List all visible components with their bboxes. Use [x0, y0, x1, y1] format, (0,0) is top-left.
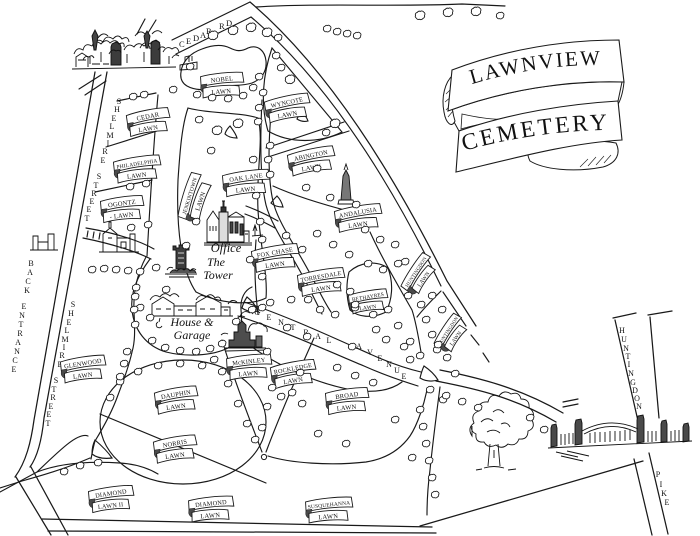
svg-text:N: N — [386, 360, 392, 369]
svg-text:E: E — [101, 156, 106, 165]
svg-text:R: R — [219, 21, 225, 31]
svg-text:U: U — [394, 366, 400, 375]
svg-text:R: R — [17, 329, 23, 338]
svg-text:L: L — [110, 122, 115, 131]
svg-text:C: C — [179, 39, 185, 49]
svg-text:E: E — [665, 498, 670, 507]
svg-text:A: A — [315, 332, 321, 341]
svg-text:E: E — [47, 410, 52, 419]
svg-text:N: N — [278, 318, 284, 327]
svg-text:K: K — [661, 489, 667, 498]
svg-text:E: E — [186, 36, 191, 46]
svg-text:L: L — [327, 336, 332, 345]
svg-text:C: C — [25, 277, 30, 286]
svg-text:V: V — [367, 348, 373, 357]
svg-text:House &: House & — [170, 315, 215, 329]
svg-text:H: H — [68, 309, 74, 318]
svg-text:E: E — [402, 372, 407, 381]
svg-text:I: I — [660, 480, 663, 489]
svg-text:L: L — [65, 326, 70, 335]
svg-text:LAWN: LAWN — [238, 370, 258, 378]
svg-text:Tower: Tower — [203, 268, 233, 282]
svg-text:C: C — [12, 356, 17, 365]
svg-text:K: K — [24, 286, 30, 295]
svg-text:T: T — [46, 419, 51, 428]
svg-text:Garage: Garage — [174, 328, 211, 342]
svg-text:T: T — [85, 214, 90, 223]
svg-text:S: S — [97, 172, 101, 181]
svg-text:B: B — [28, 259, 33, 268]
svg-text:S: S — [54, 376, 58, 385]
svg-text:LAWN: LAWN — [318, 513, 338, 521]
svg-text:LAWN: LAWN — [200, 512, 220, 520]
svg-text:H: H — [114, 105, 120, 114]
svg-text:N: N — [14, 347, 20, 356]
svg-text:I: I — [628, 360, 631, 369]
svg-text:A: A — [27, 268, 33, 277]
svg-text:N: N — [628, 369, 634, 378]
svg-text:S: S — [71, 300, 75, 309]
svg-text:A: A — [356, 342, 362, 351]
svg-text:N: N — [19, 311, 25, 320]
svg-text:P: P — [656, 470, 661, 479]
svg-text:R: R — [50, 393, 56, 402]
svg-text:E: E — [22, 302, 27, 311]
svg-text:T: T — [19, 320, 24, 329]
svg-text:The: The — [207, 255, 226, 269]
svg-text:A: A — [15, 338, 21, 347]
svg-text:R: R — [59, 351, 65, 360]
svg-text:E: E — [267, 313, 272, 322]
svg-text:N: N — [636, 402, 642, 411]
svg-text:E: E — [87, 205, 92, 214]
svg-text:U: U — [621, 335, 627, 344]
svg-text:R: R — [102, 147, 108, 156]
svg-text:E: E — [378, 354, 383, 363]
svg-text:E: E — [12, 365, 17, 374]
svg-text:D: D — [193, 33, 199, 43]
svg-text:Office: Office — [211, 241, 242, 255]
svg-text:T: T — [291, 323, 296, 332]
svg-text:H: H — [619, 326, 625, 335]
